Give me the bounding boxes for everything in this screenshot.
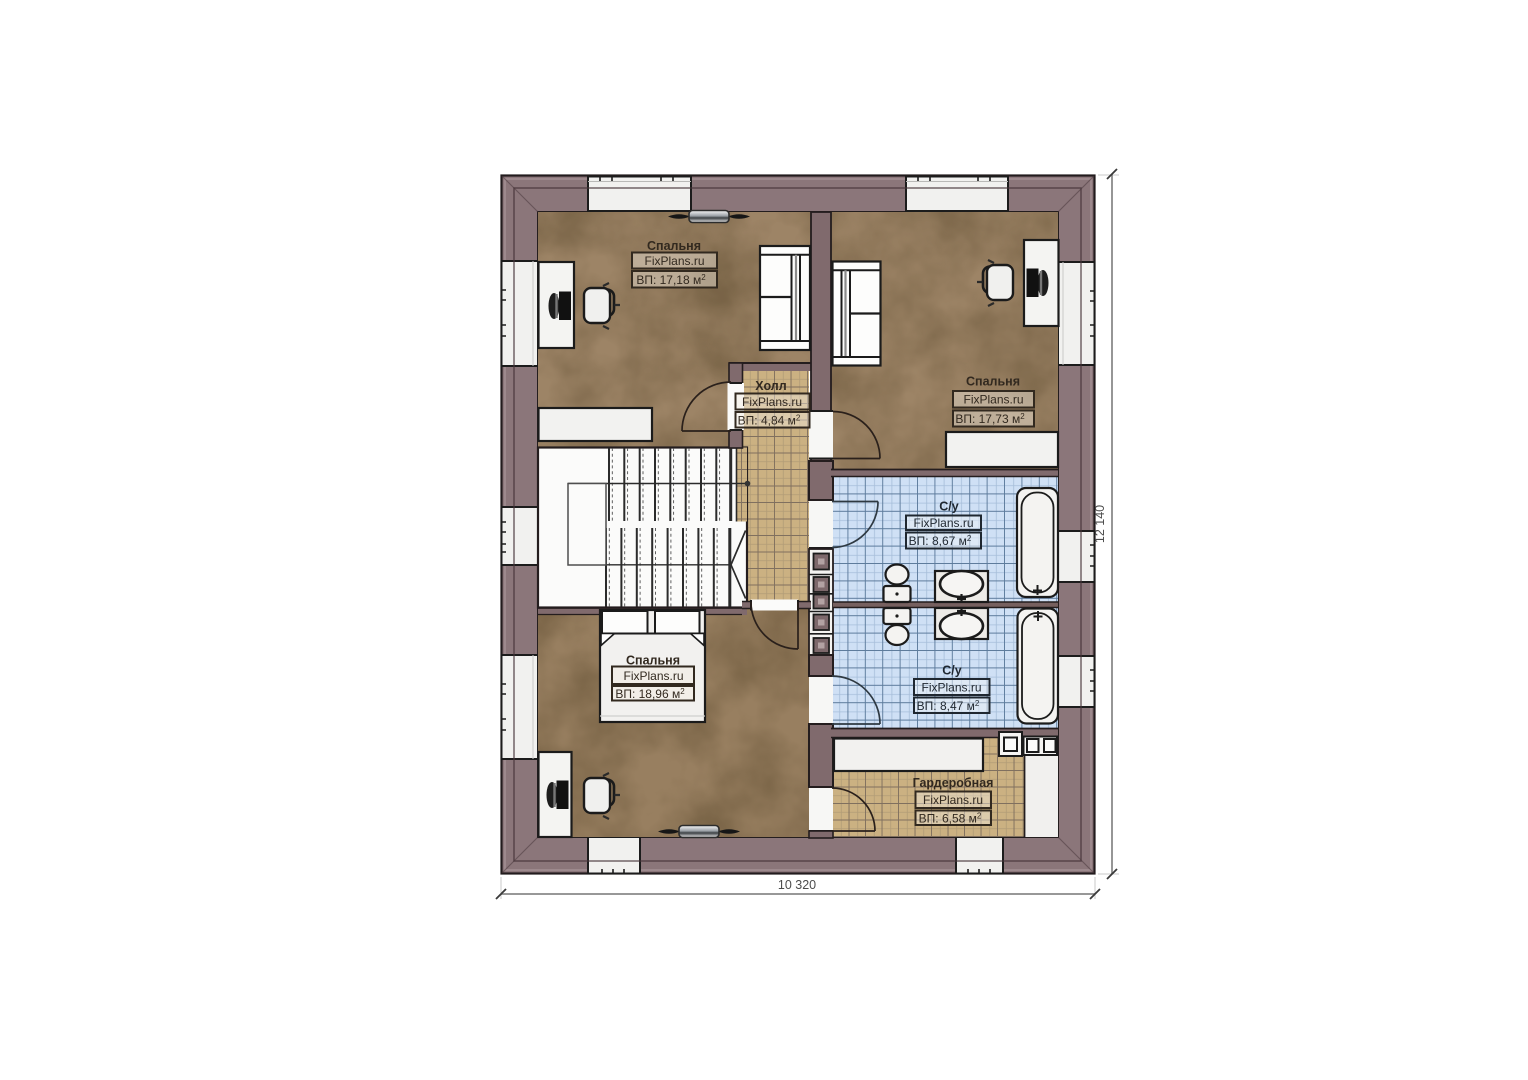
svg-text:Спальня: Спальня	[966, 375, 1020, 389]
svg-text:ВП: 8,47 м2: ВП: 8,47 м2	[917, 699, 980, 713]
svg-text:ВП: 17,18 м2: ВП: 17,18 м2	[636, 273, 706, 287]
svg-text:10 320: 10 320	[778, 878, 816, 892]
svg-text:FixPlans.ru: FixPlans.ru	[742, 395, 802, 409]
svg-text:FixPlans.ru: FixPlans.ru	[913, 516, 973, 530]
svg-text:FixPlans.ru: FixPlans.ru	[921, 681, 981, 695]
svg-text:ВП: 6,58 м2: ВП: 6,58 м2	[919, 812, 982, 826]
svg-text:FixPlans.ru: FixPlans.ru	[623, 669, 683, 683]
svg-text:ВП: 17,73 м2: ВП: 17,73 м2	[955, 412, 1025, 426]
svg-text:С/у: С/у	[939, 500, 959, 514]
svg-text:С/у: С/у	[942, 664, 962, 678]
svg-text:Холл: Холл	[755, 379, 786, 393]
svg-text:ВП: 4,84 м2: ВП: 4,84 м2	[738, 414, 801, 428]
svg-text:12 140: 12 140	[1093, 505, 1107, 543]
svg-text:FixPlans.ru: FixPlans.ru	[963, 393, 1023, 407]
svg-text:FixPlans.ru: FixPlans.ru	[644, 254, 704, 268]
svg-text:Спальня: Спальня	[647, 239, 701, 253]
svg-text:Гардеробная: Гардеробная	[913, 776, 994, 790]
svg-text:FixPlans.ru: FixPlans.ru	[923, 793, 983, 807]
svg-text:ВП: 18,96 м2: ВП: 18,96 м2	[615, 687, 685, 701]
svg-text:ВП: 8,67 м2: ВП: 8,67 м2	[909, 534, 972, 548]
svg-text:Спальня: Спальня	[626, 654, 680, 668]
